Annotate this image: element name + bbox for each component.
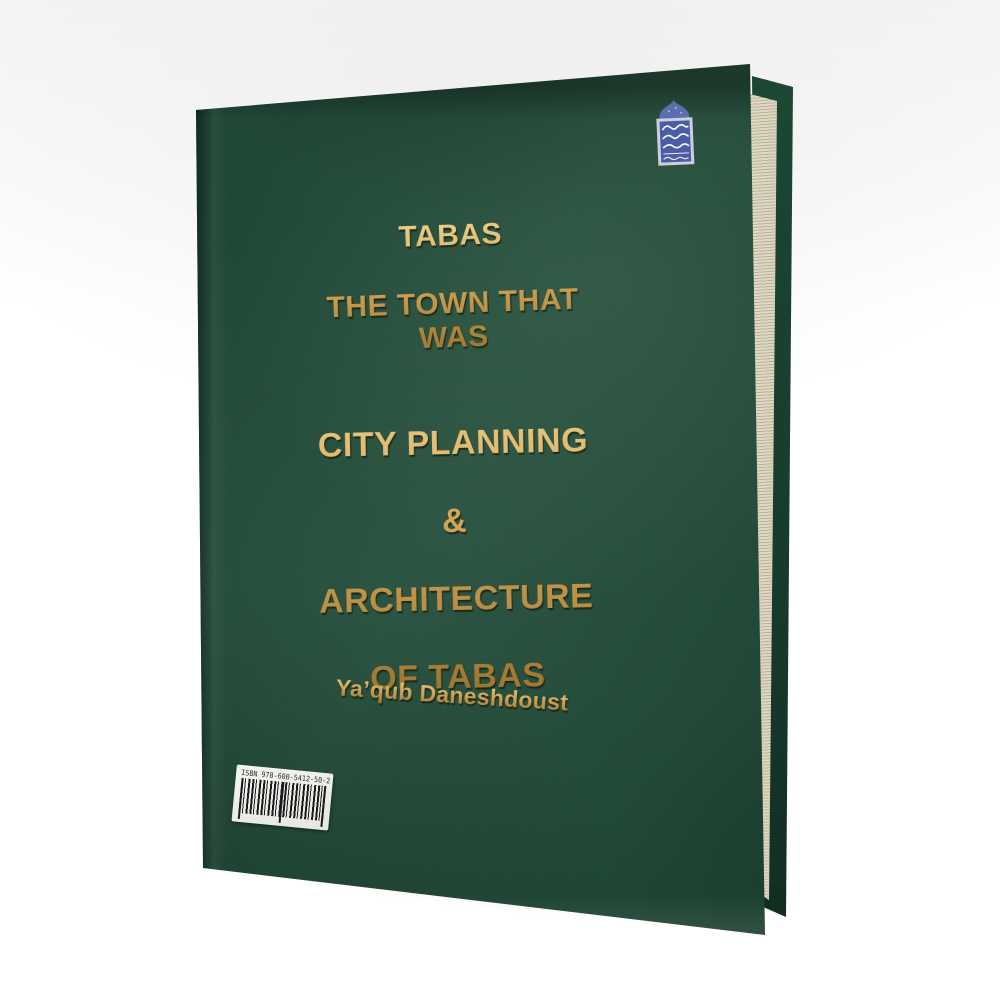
book-main-title: CITY PLANNING & ARCHITECTURE OF TABAS — [287, 382, 623, 701]
book-top-title: TABAS THE TOWN THAT WAS — [285, 213, 620, 360]
main-title-ampersand: & — [442, 502, 468, 541]
mosque-dome-publisher-emblem-icon — [650, 97, 699, 169]
top-title-line2: THE TOWN THAT WAS — [326, 283, 579, 356]
isbn-barcode-label: ISBN 978-600-5412-50-2 — [231, 764, 333, 830]
top-title-line1: TABAS — [398, 217, 503, 254]
book-photo-scene: TABAS THE TOWN THAT WAS CITY PLANNING & … — [0, 0, 1000, 1000]
barcode-bars — [237, 778, 328, 828]
main-title-line1: CITY PLANNING — [317, 421, 588, 465]
main-title-line3: ARCHITECTURE — [319, 577, 594, 621]
